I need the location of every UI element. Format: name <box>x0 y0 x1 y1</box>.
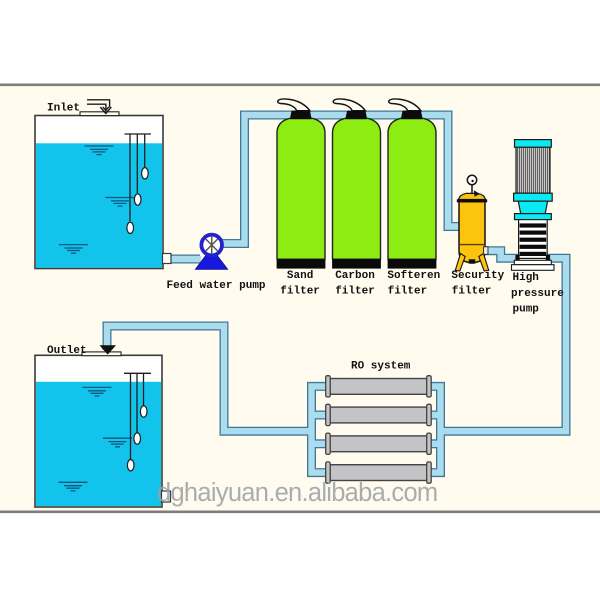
svg-text:Outlet: Outlet <box>47 345 87 357</box>
svg-text:Carbon: Carbon <box>335 270 375 282</box>
svg-text:filter: filter <box>388 285 428 297</box>
svg-text:pump: pump <box>513 304 540 316</box>
svg-text:Feed water pump: Feed water pump <box>167 280 266 292</box>
svg-text:Security: Security <box>451 270 504 282</box>
svg-text:filter: filter <box>452 285 492 297</box>
svg-text:Sand: Sand <box>287 270 313 282</box>
svg-text:pressure: pressure <box>511 288 564 300</box>
svg-text:Inlet: Inlet <box>47 103 80 115</box>
svg-text:RO system: RO system <box>351 360 411 372</box>
svg-text:filter: filter <box>335 285 375 297</box>
svg-text:dghaiyuan.en.alibaba.com: dghaiyuan.en.alibaba.com <box>157 479 437 507</box>
svg-text:Softeren: Softeren <box>387 270 440 282</box>
svg-text:filter: filter <box>280 285 320 297</box>
svg-text:High: High <box>513 272 539 284</box>
